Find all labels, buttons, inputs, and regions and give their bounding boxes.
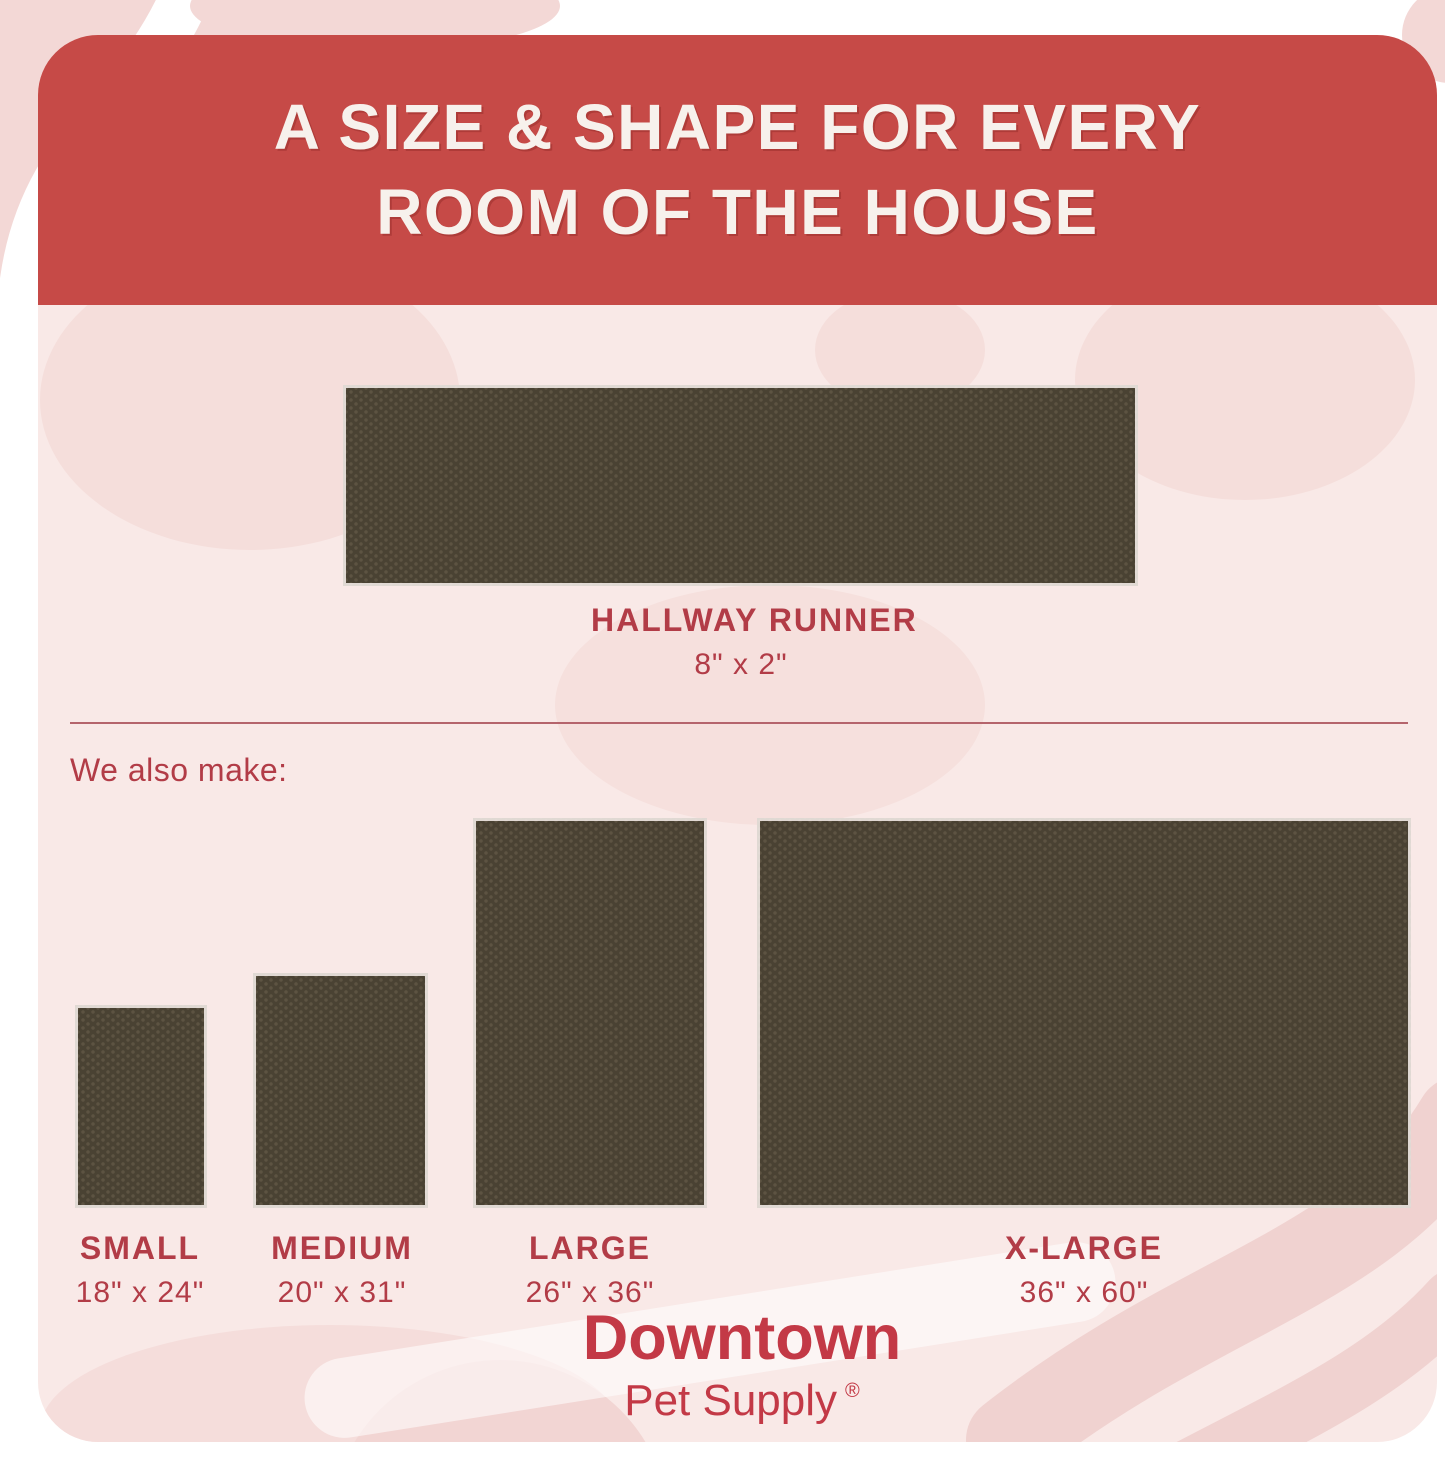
medium-size: 20" x 31"	[212, 1276, 472, 1310]
also-make-label: We also make:	[70, 752, 288, 789]
divider	[70, 722, 1408, 724]
runner-caption: HALLWAY RUNNER 8" x 2"	[591, 602, 891, 682]
medium-swatch	[253, 973, 428, 1208]
title-line-1: A SIZE & SHAPE FOR EVERY	[274, 85, 1201, 170]
title-line-2: ROOM OF THE HOUSE	[376, 170, 1098, 255]
brand-name: Downtown	[472, 1302, 1012, 1374]
xlarge-label: X-LARGE	[954, 1230, 1214, 1267]
large-label: LARGE	[460, 1230, 720, 1267]
large-caption: LARGE 26" x 36"	[460, 1230, 720, 1310]
runner-size: 8" x 2"	[591, 648, 891, 682]
brand-logo: Downtown Pet Supply®	[472, 1302, 1012, 1426]
xlarge-caption: X-LARGE 36" x 60"	[954, 1230, 1214, 1310]
medium-label: MEDIUM	[212, 1230, 472, 1267]
registered-trademark-icon: ®	[845, 1380, 860, 1402]
xlarge-swatch	[757, 818, 1411, 1208]
header-banner: A SIZE & SHAPE FOR EVERY ROOM OF THE HOU…	[38, 35, 1437, 305]
medium-caption: MEDIUM 20" x 31"	[212, 1230, 472, 1310]
runner-swatch	[343, 385, 1138, 586]
size-guide-infographic: A SIZE & SHAPE FOR EVERY ROOM OF THE HOU…	[0, 0, 1445, 1482]
brand-subtitle: Pet Supply	[624, 1376, 837, 1425]
brand-subtitle-row: Pet Supply®	[472, 1376, 1012, 1426]
runner-label: HALLWAY RUNNER	[591, 602, 891, 639]
large-swatch	[473, 818, 707, 1208]
small-swatch	[75, 1005, 207, 1208]
